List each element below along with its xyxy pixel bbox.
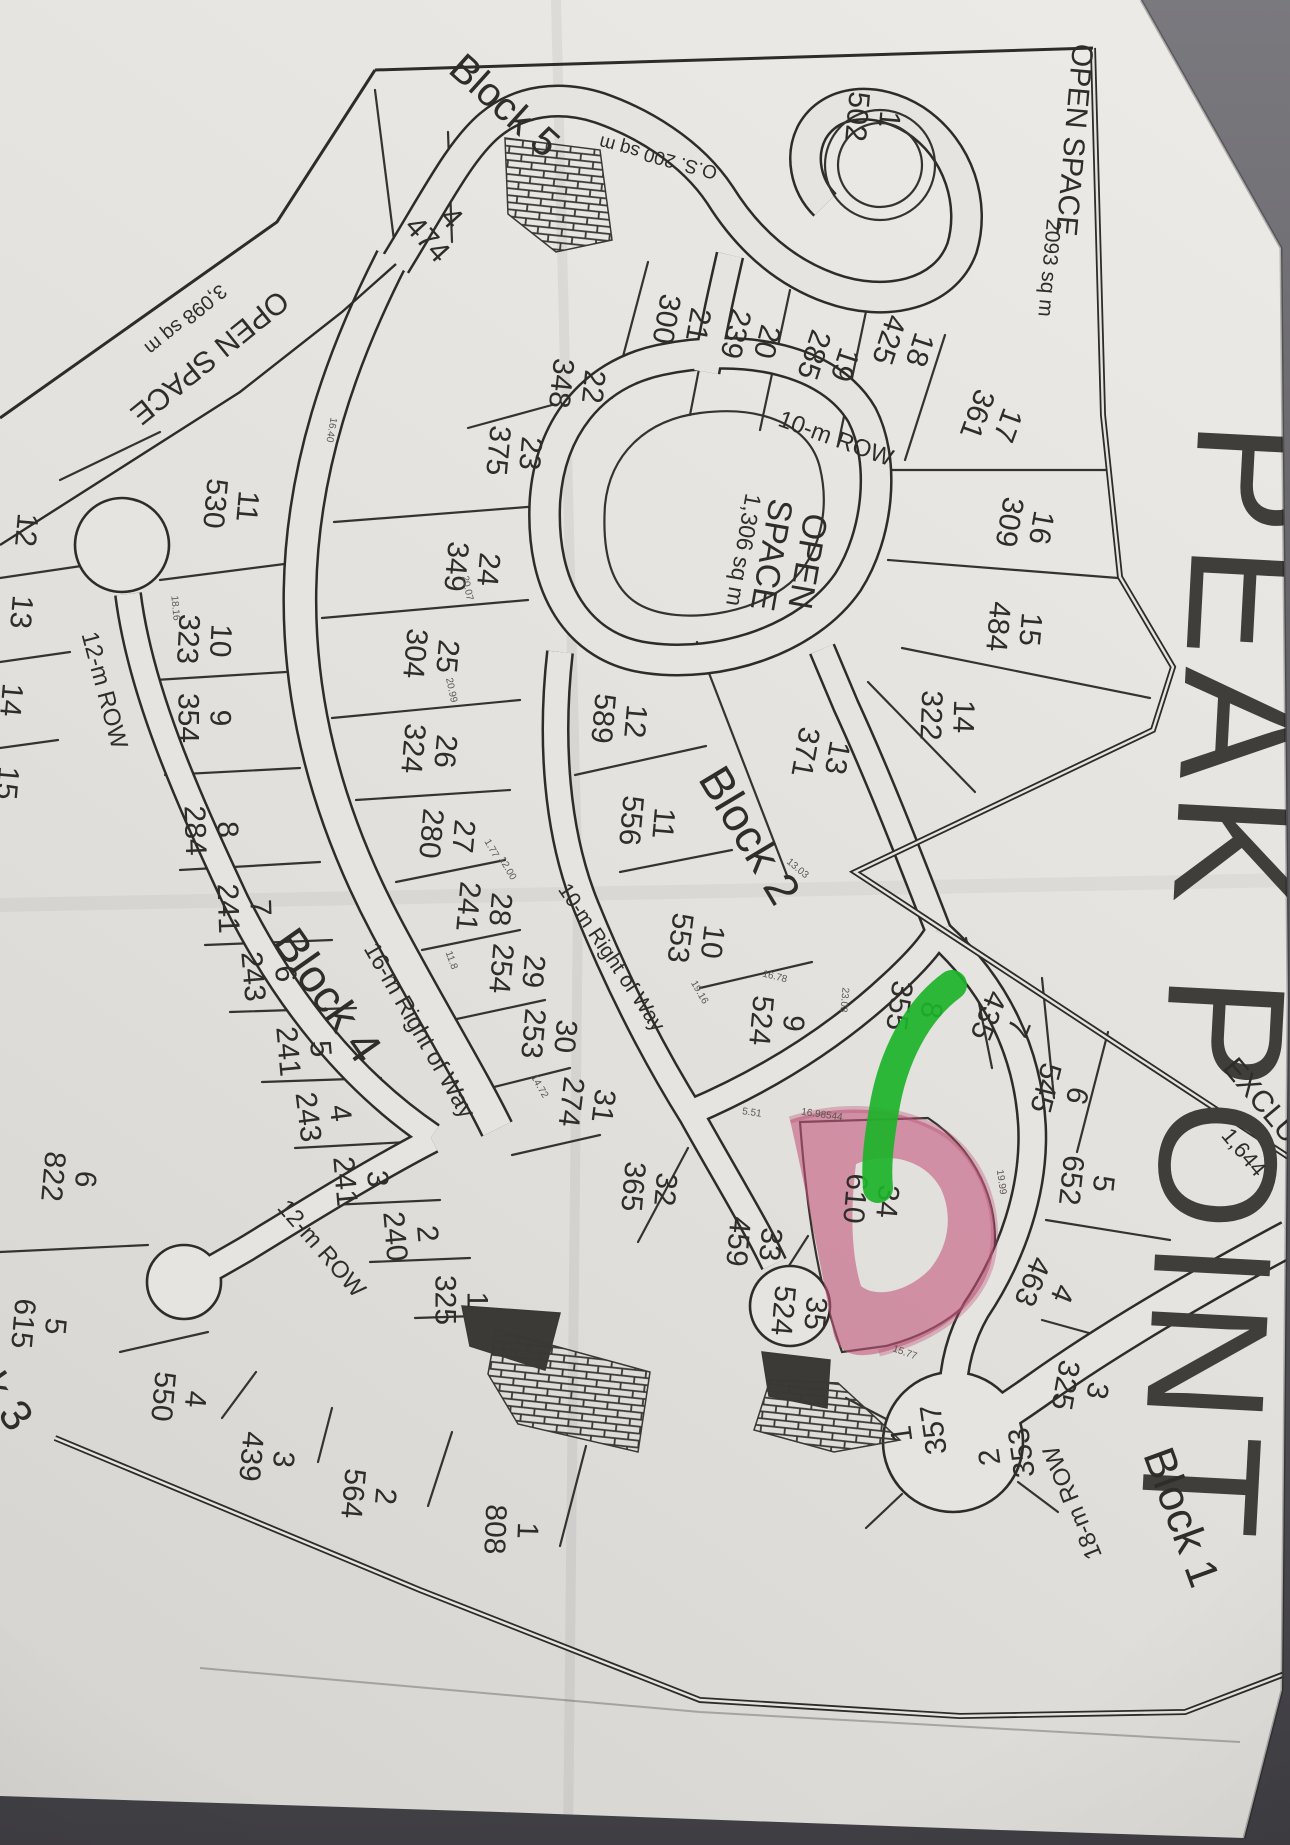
dim-18.16: 18.16 (168, 595, 181, 621)
label-lot-13-west: 13 (3, 594, 39, 630)
label-lot-15-west: 15 (0, 765, 25, 801)
label-lot-12-west: 12 (8, 512, 44, 548)
plat-map-photo: PEAK POINTOPEN SPACE2093 sq mOPEN SPACE3… (0, 0, 1290, 1845)
plat-map-svg: PEAK POINTOPEN SPACE2093 sq mOPEN SPACE3… (0, 0, 1290, 1845)
label-lot-14-west: 14 (0, 682, 29, 718)
dim-23.03: 23.03 (837, 987, 850, 1013)
